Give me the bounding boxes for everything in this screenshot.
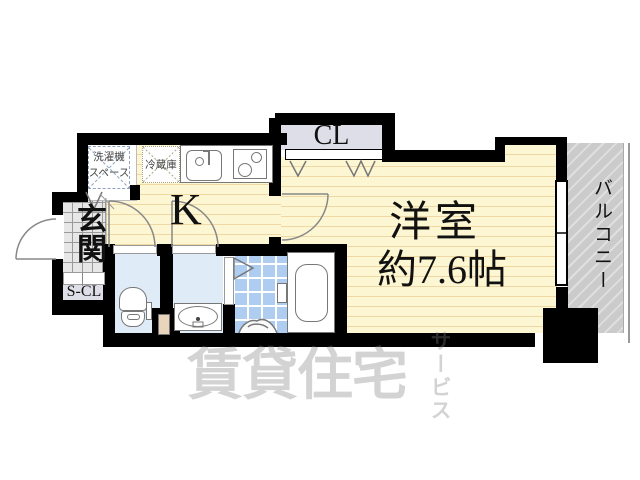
shoe-closet-label: S-CL xyxy=(62,283,106,301)
folding-door-icon xyxy=(234,258,253,279)
door-swing-arc-icon xyxy=(282,194,328,240)
closet-bifold-zigzag-icon xyxy=(290,161,306,176)
entrance-door-swing-arc-icon xyxy=(16,219,56,259)
washer-space-label-line1: 洗濯機 xyxy=(84,150,134,166)
floorplan-canvas: K CL 玄関 S-CL 洋室 約7.6帖 バルコニー 洗濯機 スペース 冷蔵庫… xyxy=(0,0,640,480)
watermark-sub: サービス xyxy=(424,330,454,410)
kitchen-label: K xyxy=(170,184,202,235)
western-room-label: 洋室 xyxy=(355,195,515,241)
basin-soap-tray xyxy=(193,322,203,327)
entrance-label: 玄関 xyxy=(66,203,110,275)
faucet-icon xyxy=(203,151,209,165)
washer-space-label: 洗濯機 スペース xyxy=(84,150,134,182)
watermark-main: 賃貸住宅 xyxy=(187,330,407,411)
closet-bifold-zigzag-icon xyxy=(346,161,375,176)
refrigerator-label: 冷蔵庫 xyxy=(140,157,182,171)
basin-faucet-dot xyxy=(196,317,200,321)
closet-label: CL xyxy=(281,121,382,151)
balcony-label: バルコニー xyxy=(588,178,615,298)
western-room-size-label: 約7.6帖 xyxy=(352,243,532,289)
washer-space-label-line2: スペース xyxy=(84,166,134,182)
door-swing-arc-icon xyxy=(109,201,155,247)
